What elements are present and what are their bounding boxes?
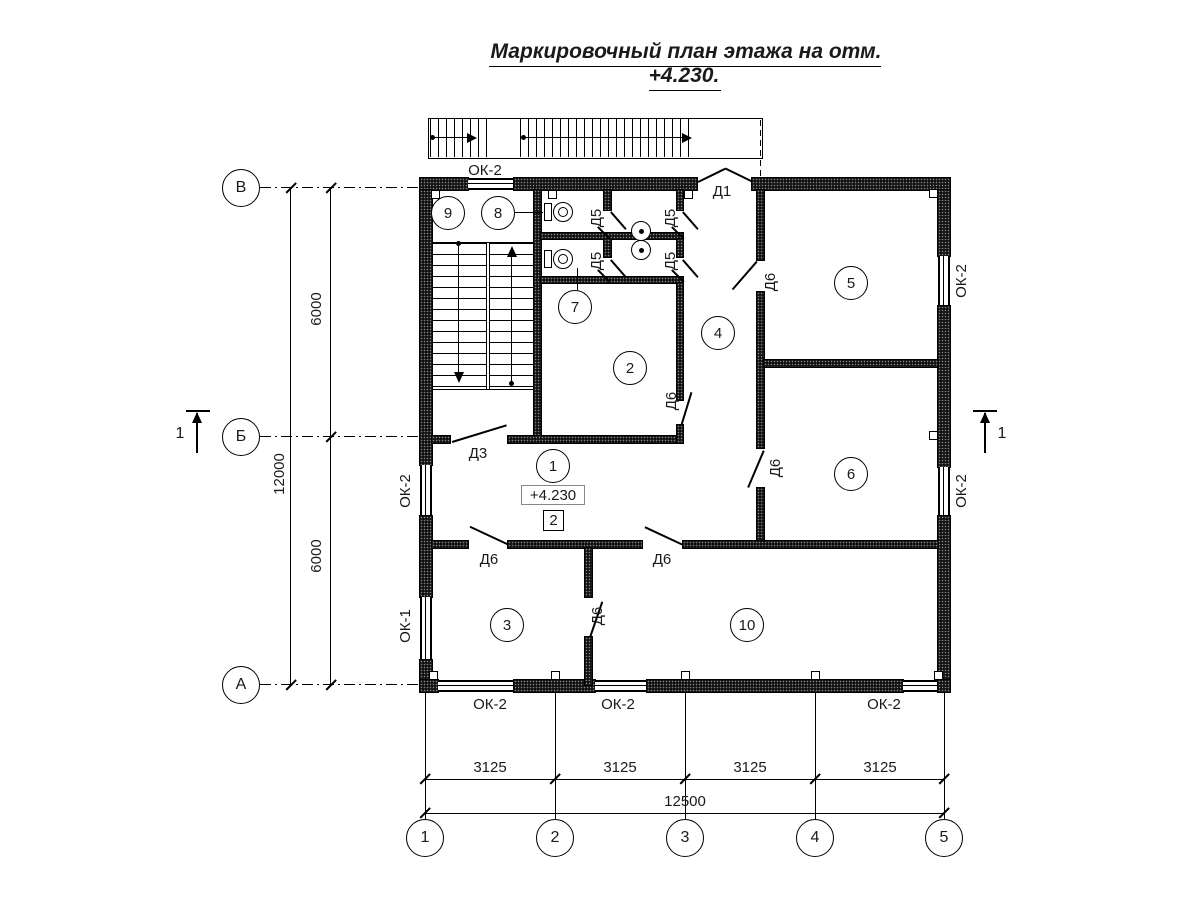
exterior-stair bbox=[428, 118, 763, 159]
wall-bottom-seg3 bbox=[647, 680, 903, 692]
wall-axis-b-stub bbox=[432, 436, 450, 443]
column-mark bbox=[929, 431, 938, 440]
door-leaf-d6-vestibule-lower bbox=[748, 450, 765, 487]
toilet-bowl-inner bbox=[558, 207, 568, 217]
sink-upper-drain bbox=[639, 229, 644, 234]
wall-left-seg2 bbox=[420, 516, 432, 597]
room-bubble-8: 8 bbox=[481, 196, 515, 230]
column-mark bbox=[811, 671, 820, 680]
wall-top-seg1 bbox=[420, 178, 468, 190]
wall-room2-bottom bbox=[508, 436, 683, 443]
stair-landing-edge-bottom bbox=[432, 389, 534, 390]
window-ok2-bottom-left bbox=[438, 680, 514, 692]
door-leaf-d5-2 bbox=[610, 259, 626, 277]
window-label-ok2-bottom-left: ОК-2 bbox=[465, 695, 515, 713]
wall-stairwell-right bbox=[534, 190, 541, 443]
axis-bubble-a: А bbox=[222, 666, 260, 704]
wall-left-seg1 bbox=[420, 190, 432, 465]
window-ok2-right-upper bbox=[938, 256, 950, 306]
toilet-tank bbox=[544, 250, 552, 268]
door-leaf-d6-room1-left bbox=[470, 526, 509, 545]
door-leaf-d1-right bbox=[725, 168, 753, 182]
dim-label-left-12000: 12000 bbox=[269, 434, 289, 514]
window-label-ok2-right-upper: ОК-2 bbox=[952, 256, 970, 306]
window-label-ok2-right-lower: ОК-2 bbox=[952, 466, 970, 516]
wall-room3-10-lower bbox=[585, 637, 592, 685]
wall-bottom-corner bbox=[938, 680, 950, 692]
axis-bubble-5: 5 bbox=[925, 819, 963, 857]
window-label-ok2-left: ОК-2 bbox=[396, 466, 414, 516]
dim-ext-line-axis4 bbox=[815, 692, 816, 819]
column-mark bbox=[681, 671, 690, 680]
window-ok2-left bbox=[420, 465, 432, 516]
room-bubble-10: 10 bbox=[730, 608, 764, 642]
stair-path-line1 bbox=[433, 137, 467, 138]
door-leaf-d5-3 bbox=[682, 211, 698, 229]
toilet-bowl-inner bbox=[558, 254, 568, 264]
floor-plan-canvas: Маркировочный план этажа на отм. +4.230. bbox=[0, 0, 1200, 900]
room-bubble-3: 3 bbox=[490, 608, 524, 642]
door-label-d6-room3-10: Д6 bbox=[588, 599, 606, 633]
column-mark bbox=[429, 671, 438, 680]
section-label-left: 1 bbox=[172, 424, 188, 444]
wall-wc-divider bbox=[541, 233, 683, 239]
stair-arrow-down bbox=[454, 372, 464, 383]
drawing-title: Маркировочный план этажа на отм. +4.230. bbox=[455, 40, 915, 88]
door-leaf-d1-left bbox=[698, 168, 726, 182]
dim-label-left-6000-upper: 6000 bbox=[306, 269, 326, 349]
stair-path-line-down bbox=[458, 246, 459, 374]
axis-bubble-v: В bbox=[222, 169, 260, 207]
wall-vestibule-seg1 bbox=[757, 190, 764, 260]
wall-room2-right-stub bbox=[677, 425, 683, 443]
window-ok2-right-lower bbox=[938, 467, 950, 516]
door-leaf-d3 bbox=[452, 424, 507, 442]
toilet-upper bbox=[544, 200, 574, 224]
door-leaf-d5-4 bbox=[682, 259, 698, 277]
column-mark bbox=[929, 189, 938, 198]
room-bubble-1: 1 bbox=[536, 449, 570, 483]
interior-stair-flight-down bbox=[433, 243, 486, 389]
leader-room8 bbox=[515, 212, 543, 213]
door-label-d5-3: Д5 bbox=[661, 203, 679, 233]
window-label-ok2-top: ОК-2 bbox=[460, 161, 510, 179]
door-label-d5-4: Д5 bbox=[661, 246, 679, 276]
door-label-d3: Д3 bbox=[461, 444, 495, 462]
room-bubble-6: 6 bbox=[834, 457, 868, 491]
dim-label-3125-2: 3125 bbox=[597, 759, 643, 775]
door-label-d6-vestibule-upper: Д6 bbox=[761, 265, 779, 299]
interior-stair-divider bbox=[486, 242, 490, 390]
room-bubble-2: 2 bbox=[613, 351, 647, 385]
column-mark bbox=[934, 671, 943, 680]
window-ok2-bottom-mid bbox=[595, 680, 647, 692]
door-label-d1: Д1 bbox=[705, 182, 739, 200]
wall-right-seg3 bbox=[938, 516, 950, 680]
dim-label-12500: 12500 bbox=[658, 793, 712, 809]
elevation-mark-box: +4.230 bbox=[521, 485, 585, 505]
interior-stair-flight-up bbox=[490, 243, 534, 389]
wall-room1-bottom-stub bbox=[432, 541, 468, 548]
wall-room2-right bbox=[677, 283, 683, 400]
door-leaf-d6-room1-right bbox=[645, 527, 683, 546]
dim-label-3125-3: 3125 bbox=[727, 759, 773, 775]
window-ok1-left bbox=[420, 597, 432, 660]
column-mark bbox=[548, 190, 557, 199]
wall-vestibule-seg3 bbox=[757, 488, 764, 545]
door-label-d5-1: Д5 bbox=[587, 203, 605, 233]
room-bubble-5: 5 bbox=[834, 266, 868, 300]
stair-treads-flight1 bbox=[430, 119, 487, 157]
dim-ext-line-axis1 bbox=[425, 692, 426, 819]
stair-landing-edge-top bbox=[432, 242, 534, 243]
dim-ext-line-axis2 bbox=[555, 692, 556, 819]
door-label-d6-room2: Д6 bbox=[662, 384, 680, 418]
door-label-d6-vestibule-lower: Д6 bbox=[766, 451, 784, 485]
sink-lower-drain bbox=[639, 248, 644, 253]
axis-bubble-1: 1 bbox=[406, 819, 444, 857]
stair-treads-flight2 bbox=[520, 119, 692, 157]
dim-label-left-6000-lower: 6000 bbox=[306, 516, 326, 596]
wall-right-seg2 bbox=[938, 306, 950, 467]
wall-bottom-seg1 bbox=[420, 680, 438, 692]
axis-bubble-b: Б bbox=[222, 418, 260, 456]
wall-wc-stub-upper bbox=[604, 190, 611, 210]
toilet-tank bbox=[544, 203, 552, 221]
drawing-title-text: Маркировочный план этажа на отм. +4.230. bbox=[489, 40, 882, 91]
axis-line-v bbox=[260, 187, 420, 188]
section-label-right: 1 bbox=[994, 424, 1010, 444]
stair-direction-arrow2 bbox=[682, 133, 692, 143]
wall-room3-10-upper bbox=[585, 548, 592, 597]
wall-bottom-seg2 bbox=[514, 680, 595, 692]
window-ok2-top bbox=[468, 178, 514, 190]
stair-arrow-up bbox=[507, 246, 517, 257]
dim-ext-line-axis5 bbox=[944, 692, 945, 819]
door-label-d6-room1-right: Д6 bbox=[645, 550, 679, 568]
dim-label-3125-4: 3125 bbox=[857, 759, 903, 775]
column-mark bbox=[551, 671, 560, 680]
stair-direction-arrow1 bbox=[467, 133, 477, 143]
porch-edge-dashed-line bbox=[760, 120, 761, 178]
wall-top-seg3 bbox=[752, 178, 950, 190]
window-ok2-bottom-right bbox=[903, 680, 938, 692]
stair-path-line2 bbox=[524, 137, 682, 138]
wall-right-seg1 bbox=[938, 190, 950, 256]
section-arrow bbox=[980, 412, 990, 423]
window-label-ok1-left: ОК-1 bbox=[396, 601, 414, 651]
zone-mark-box: 2 bbox=[543, 510, 564, 531]
wall-room5-6-divider bbox=[764, 360, 938, 367]
axis-bubble-4: 4 bbox=[796, 819, 834, 857]
door-label-d5-2: Д5 bbox=[587, 246, 605, 276]
dim-line-left-total bbox=[290, 188, 291, 685]
dim-line-bottom-total bbox=[425, 813, 944, 814]
leader-room7 bbox=[577, 268, 578, 290]
window-label-ok2-bottom-right: ОК-2 bbox=[859, 695, 909, 713]
door-label-d6-room1-left: Д6 bbox=[472, 550, 506, 568]
toilet-lower bbox=[544, 247, 574, 271]
stair-path-line-up bbox=[511, 252, 512, 382]
room-bubble-7: 7 bbox=[558, 290, 592, 324]
axis-bubble-3: 3 bbox=[666, 819, 704, 857]
wall-vestibule-seg2 bbox=[757, 292, 764, 448]
dim-label-3125-1: 3125 bbox=[467, 759, 513, 775]
wall-wc-bottom bbox=[541, 277, 683, 283]
room-bubble-4: 4 bbox=[701, 316, 735, 350]
door-leaf-d5-1 bbox=[610, 211, 626, 229]
wall-wc-stub-lower bbox=[604, 239, 611, 257]
axis-line-a bbox=[260, 684, 420, 685]
room-bubble-9: 9 bbox=[431, 196, 465, 230]
wall-room1-bottom-mid bbox=[508, 541, 642, 548]
section-arrow bbox=[192, 412, 202, 423]
column-mark bbox=[684, 190, 693, 199]
window-label-ok2-bottom-mid: ОК-2 bbox=[593, 695, 643, 713]
axis-bubble-2: 2 bbox=[536, 819, 574, 857]
wall-room10-top bbox=[683, 541, 938, 548]
wall-top-seg2 bbox=[514, 178, 697, 190]
door-leaf-d6-vestibule-upper bbox=[732, 261, 757, 290]
